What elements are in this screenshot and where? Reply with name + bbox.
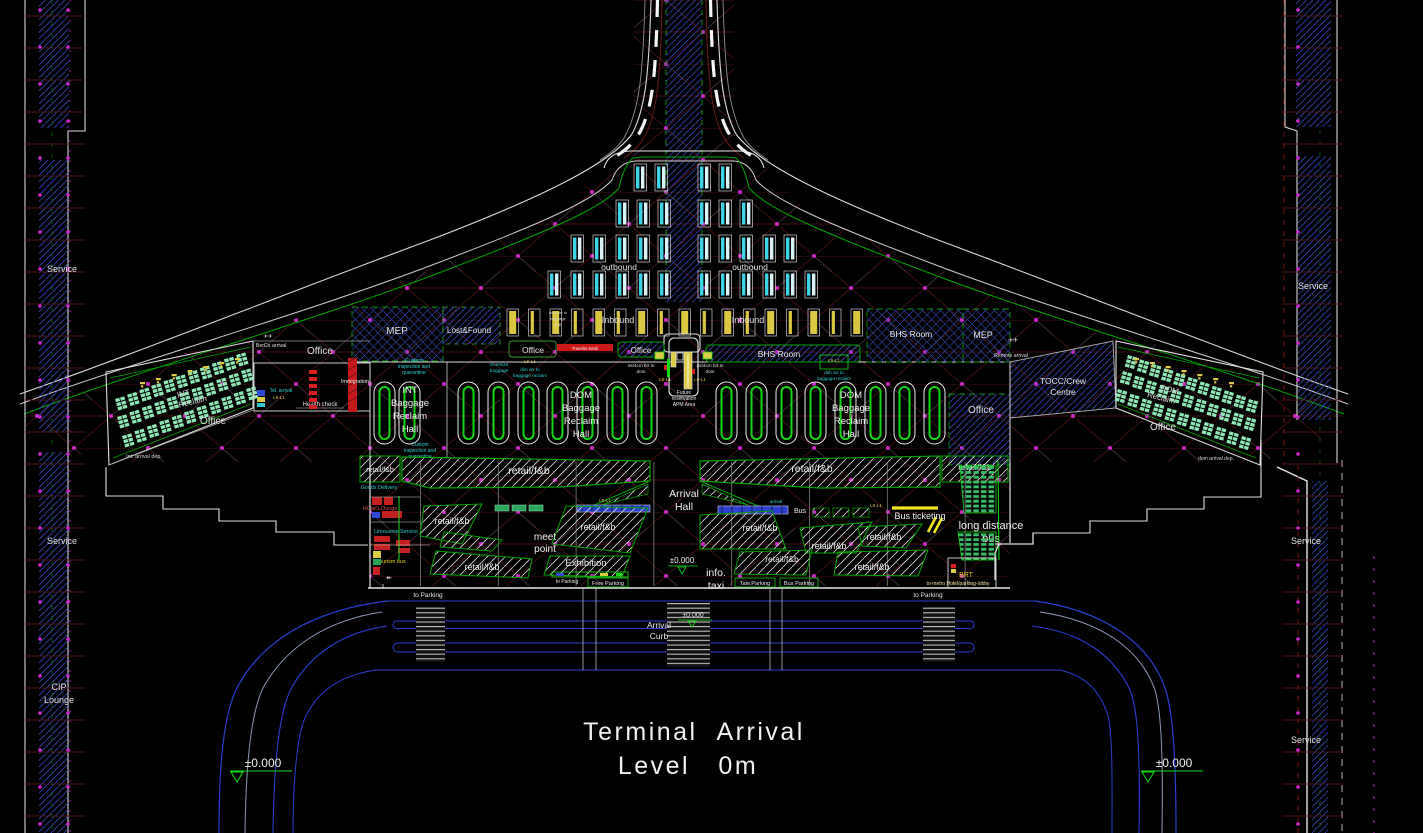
- svg-text:Baggage: Baggage: [832, 403, 870, 414]
- svg-text:±0.000: ±0.000: [670, 556, 695, 565]
- svg-text:retail/f&b: retail/f&b: [508, 465, 550, 477]
- svg-text:BerCo arrival: BerCo arrival: [256, 343, 286, 349]
- svg-text:L9-L1: L9-L1: [659, 377, 671, 382]
- svg-text:✈✈: ✈✈: [263, 333, 273, 340]
- svg-text:dom arrival dep.: dom arrival dep.: [1198, 456, 1234, 462]
- svg-text:Curb: Curb: [650, 631, 669, 641]
- svg-text:L9-L1: L9-L1: [828, 358, 840, 363]
- svg-text:Arrival: Arrival: [669, 488, 699, 500]
- svg-text:CIP: CIP: [51, 682, 66, 692]
- svg-text:±0.000: ±0.000: [245, 756, 282, 770]
- svg-text:BHS Room: BHS Room: [758, 349, 801, 359]
- svg-text:arrival: arrival: [770, 499, 783, 504]
- svg-text:dom arr to: dom arr to: [549, 310, 568, 315]
- svg-text:INT: INT: [402, 385, 418, 396]
- svg-text:Level 0m: Level 0m: [618, 752, 758, 780]
- svg-text:long distance: long distance: [959, 520, 1024, 532]
- svg-text:✈✈: ✈✈: [1008, 337, 1018, 344]
- svg-text:Hall: Hall: [675, 501, 693, 513]
- svg-text:DOM: DOM: [570, 390, 592, 401]
- svg-text:point: point: [534, 544, 556, 555]
- svg-text:Remote arrival: Remote arrival: [994, 353, 1028, 359]
- svg-text:retail/f&b: retail/f&b: [791, 463, 833, 475]
- svg-text:retail/f&b: retail/f&b: [765, 554, 799, 564]
- svg-text:Office: Office: [307, 346, 333, 357]
- svg-text:to Parking: to Parking: [913, 592, 943, 599]
- svg-text:Office: Office: [1150, 422, 1176, 433]
- svg-text:Oversize: Oversize: [490, 362, 509, 368]
- svg-text:Service: Service: [47, 264, 77, 274]
- svg-text:MEP: MEP: [386, 326, 408, 337]
- svg-text:L9-L1: L9-L1: [273, 395, 285, 400]
- svg-text:BRT: BRT: [959, 572, 974, 579]
- svg-text:Baggage: Baggage: [562, 403, 600, 414]
- svg-text:L9-L1: L9-L1: [524, 359, 536, 364]
- svg-text:Bus Parking: Bus Parking: [784, 581, 814, 587]
- svg-text:dim arr to: dim arr to: [520, 367, 540, 372]
- svg-text:outbound: outbound: [732, 262, 768, 272]
- svg-text:retail/f&b: retail/f&b: [435, 516, 470, 526]
- svg-text:±0.000: ±0.000: [1156, 756, 1193, 770]
- svg-text:Service: Service: [47, 536, 77, 546]
- svg-text:retail/f&b: retail/f&b: [867, 532, 902, 542]
- svg-text:Reclaim: Reclaim: [834, 416, 868, 427]
- svg-text:dom: dom: [637, 369, 646, 374]
- svg-text:Goods Delivery: Goods Delivery: [361, 485, 398, 491]
- svg-text:retail/f&b: retail/f&b: [581, 522, 616, 532]
- svg-text:TOCC/Crew: TOCC/Crew: [1040, 376, 1087, 386]
- svg-text:Service: Service: [1291, 735, 1321, 745]
- svg-text:Baggage: Baggage: [391, 398, 429, 409]
- svg-text:Arrival: Arrival: [647, 620, 671, 630]
- svg-text:Taxi Parking: Taxi Parking: [740, 581, 770, 587]
- svg-text:Hall: Hall: [573, 429, 589, 440]
- svg-text:Transfer Desk: Transfer Desk: [572, 346, 599, 351]
- svg-text:dom: dom: [706, 369, 715, 374]
- svg-text:retail/f&b: retail/f&b: [465, 562, 500, 572]
- svg-text:L9-L1: L9-L1: [599, 498, 611, 503]
- svg-text:Tel. arrival: Tel. arrival: [270, 388, 293, 394]
- svg-text:mt/4cm brt to: mt/4cm brt to: [628, 363, 655, 368]
- svg-text:Lost&Found: Lost&Found: [447, 326, 492, 335]
- svg-text:meet: meet: [534, 532, 556, 543]
- svg-text:Hall: Hall: [843, 429, 859, 440]
- svg-text:dim arr to: dim arr to: [824, 370, 844, 375]
- svg-text:baggage: baggage: [490, 368, 509, 374]
- svg-text:retail/f&b: retail/f&b: [855, 562, 890, 572]
- svg-text:baggage: baggage: [550, 316, 566, 321]
- svg-text:L9-L1: L9-L1: [694, 377, 706, 382]
- svg-text:baggage reclaim: baggage reclaim: [513, 373, 547, 378]
- svg-text:Service: Service: [1298, 281, 1328, 291]
- svg-text:Office: Office: [631, 346, 652, 355]
- svg-text:±0.000: ±0.000: [682, 612, 703, 619]
- svg-text:Int. arrival dep.: Int. arrival dep.: [126, 454, 162, 460]
- svg-text:Bus: Bus: [794, 508, 807, 515]
- svg-text:retail/f&b: retail/f&b: [743, 523, 778, 533]
- svg-text:Reclaim: Reclaim: [393, 411, 427, 422]
- svg-text:Terminal Arrival: Terminal Arrival: [583, 718, 805, 746]
- svg-text:MEP: MEP: [973, 330, 993, 340]
- svg-text:APM Area: APM Area: [673, 402, 696, 408]
- svg-text:to Parking: to Parking: [556, 579, 579, 585]
- svg-text:Exhibition: Exhibition: [565, 558, 606, 569]
- svg-text:Centre: Centre: [1050, 387, 1076, 397]
- svg-text:Limousine Service: Limousine Service: [374, 529, 418, 535]
- svg-text:Lounge: Lounge: [44, 695, 74, 705]
- svg-text:Reclaim: Reclaim: [564, 416, 598, 427]
- svg-text:Inbound: Inbound: [732, 315, 765, 325]
- svg-text:Health check: Health check: [303, 402, 339, 408]
- svg-text:to-metro Hotel/parking-lobby: to-metro Hotel/parking-lobby: [926, 581, 990, 587]
- svg-text:taxi: taxi: [708, 580, 724, 592]
- svg-text:Service: Service: [1291, 536, 1321, 546]
- svg-text:BHS Room: BHS Room: [890, 329, 933, 339]
- svg-text:L9-L1: L9-L1: [870, 503, 882, 508]
- svg-text:Bus ticketing: Bus ticketing: [894, 511, 945, 521]
- svg-text:Hall: Hall: [402, 424, 418, 435]
- svg-text:to Parking: to Parking: [413, 592, 443, 599]
- svg-text:Free Parking: Free Parking: [592, 581, 624, 587]
- svg-text:baggage reclaim: baggage reclaim: [817, 376, 851, 381]
- svg-text:Inbound: Inbound: [602, 315, 635, 325]
- svg-text:retail/f&b: retail/f&b: [812, 541, 847, 551]
- svg-text:info.: info.: [706, 567, 726, 579]
- svg-text:hall: hall: [555, 322, 561, 327]
- svg-text:↞: ↞: [386, 575, 392, 582]
- svg-text:DOM: DOM: [840, 390, 862, 401]
- svg-text:Immigration: Immigration: [341, 379, 369, 385]
- svg-text:Office: Office: [522, 345, 544, 355]
- svg-text:mt/4cm brt to: mt/4cm brt to: [697, 363, 724, 368]
- svg-text:outbound: outbound: [601, 262, 637, 272]
- svg-text:Office: Office: [968, 405, 994, 416]
- svg-text:quarantine: quarantine: [402, 370, 426, 376]
